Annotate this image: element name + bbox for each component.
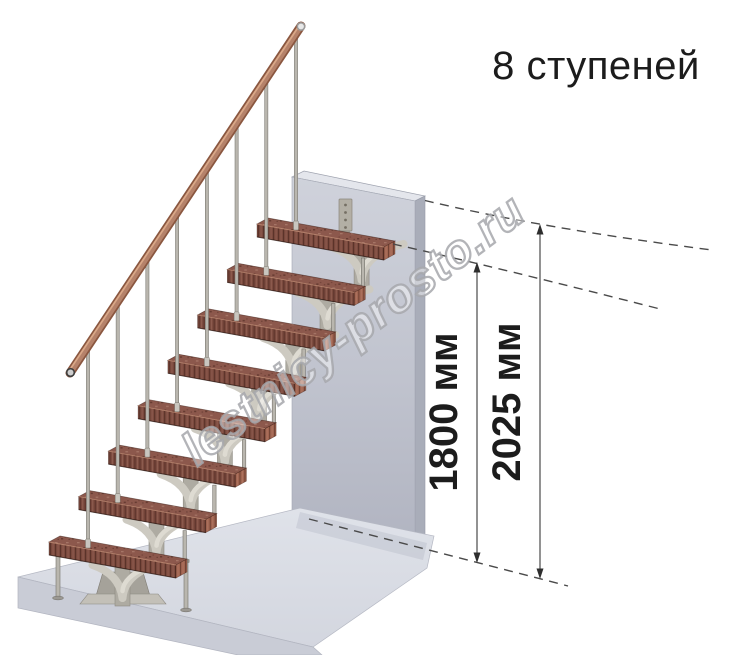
baluster — [204, 168, 209, 366]
baluster — [145, 259, 150, 457]
staircase-render: 1800 мм 2025 мм 8 ступеней lestnicy-pros… — [0, 0, 744, 655]
baluster — [264, 77, 269, 275]
baluster — [234, 123, 239, 321]
baluster — [175, 214, 180, 412]
dimension-label-2025: 2025 мм — [485, 322, 529, 481]
baluster — [115, 305, 120, 503]
baluster — [86, 350, 91, 548]
steps-count-title: 8 ступеней — [492, 44, 700, 88]
dimension-label-1800: 1800 мм — [422, 332, 466, 491]
baluster — [294, 32, 299, 230]
staircase-illustration: 1800 мм 2025 мм 8 ступеней lestnicy-pros… — [0, 0, 744, 655]
